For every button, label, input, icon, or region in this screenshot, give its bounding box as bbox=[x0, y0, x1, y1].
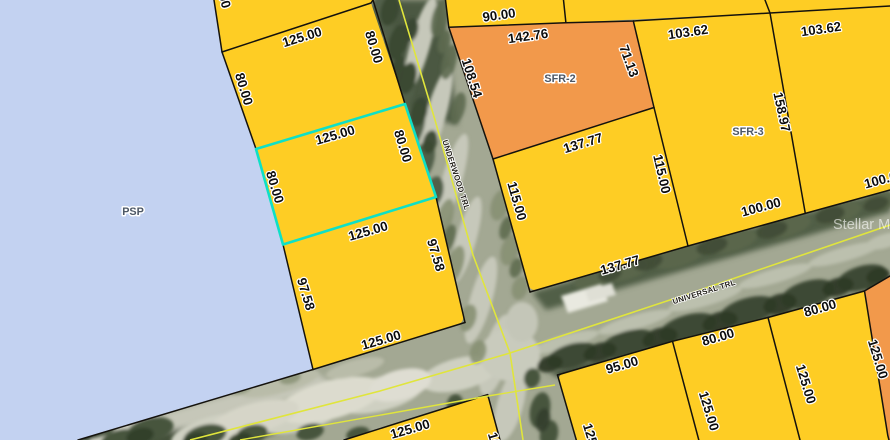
svg-text:SFR-2: SFR-2 bbox=[544, 73, 575, 85]
svg-text:Stellar MLS: Stellar MLS bbox=[833, 217, 890, 233]
svg-text:SFR-3: SFR-3 bbox=[732, 126, 763, 138]
svg-text:PSP: PSP bbox=[122, 206, 144, 218]
